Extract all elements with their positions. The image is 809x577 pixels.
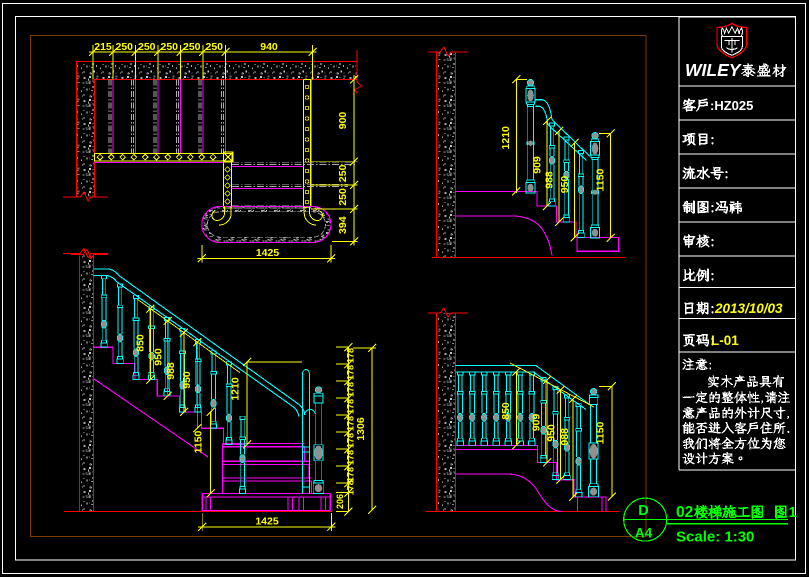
svg-text:950: 950: [559, 176, 571, 194]
svg-text:950: 950: [153, 348, 165, 366]
svg-text:1210: 1210: [230, 377, 242, 401]
svg-text:250: 250: [337, 164, 349, 182]
svg-text:215: 215: [94, 41, 112, 53]
svg-text:950: 950: [546, 424, 558, 442]
svg-text:850: 850: [135, 334, 147, 352]
svg-text:206: 206: [335, 494, 345, 509]
svg-text:250: 250: [115, 41, 133, 53]
svg-text:178: 178: [346, 365, 356, 380]
svg-text:250: 250: [337, 188, 349, 206]
svg-text:250: 250: [183, 41, 201, 53]
svg-text:L-01: L-01: [711, 333, 739, 348]
svg-text:178: 178: [346, 382, 356, 397]
svg-text:A4: A4: [635, 526, 653, 541]
svg-text:1210: 1210: [500, 126, 512, 150]
svg-text:178: 178: [346, 399, 356, 414]
svg-text:1150: 1150: [594, 168, 606, 191]
svg-text:1425: 1425: [255, 516, 279, 528]
svg-text:178: 178: [346, 467, 356, 482]
svg-text:988: 988: [559, 428, 571, 446]
svg-text:178: 178: [346, 433, 356, 448]
svg-text:1: 1: [789, 504, 797, 521]
svg-text:900: 900: [337, 112, 349, 130]
svg-text:850: 850: [500, 402, 512, 420]
svg-text:2013/10/03: 2013/10/03: [714, 301, 783, 316]
svg-text:178: 178: [346, 416, 356, 431]
svg-text:250: 250: [138, 41, 156, 53]
svg-text:988: 988: [165, 362, 177, 380]
svg-text:250: 250: [160, 41, 178, 53]
svg-text:250: 250: [205, 41, 223, 53]
svg-text:02: 02: [676, 504, 693, 521]
svg-text:WILEY: WILEY: [685, 60, 742, 80]
svg-text:1150: 1150: [193, 430, 205, 453]
svg-text:178: 178: [346, 348, 356, 363]
svg-text::HZ025: :HZ025: [710, 98, 753, 113]
svg-text:1150: 1150: [594, 421, 606, 444]
svg-text:1425: 1425: [256, 247, 280, 259]
svg-text:940: 940: [260, 41, 278, 53]
svg-text:178: 178: [346, 450, 356, 465]
svg-text:909: 909: [530, 414, 542, 432]
svg-text:394: 394: [337, 216, 349, 234]
svg-text:950: 950: [181, 371, 193, 389]
svg-text:178: 178: [346, 480, 356, 495]
svg-text:988: 988: [544, 171, 556, 189]
svg-text:Scale: 1:30: Scale: 1:30: [676, 529, 754, 546]
svg-text:909: 909: [532, 156, 544, 174]
svg-text:D: D: [638, 503, 648, 519]
svg-text:1306: 1306: [355, 417, 367, 441]
